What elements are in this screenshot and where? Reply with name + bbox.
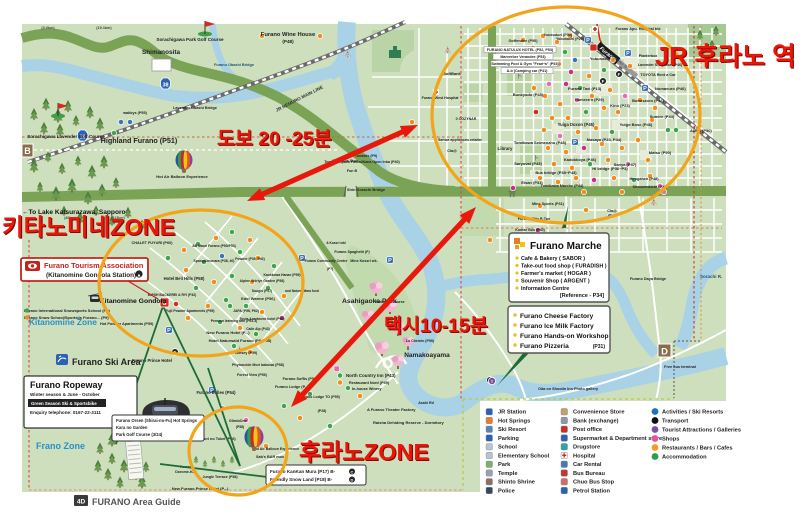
svg-text:CHALET FUYURI (P60): CHALET FUYURI (P60) <box>132 241 174 245</box>
svg-text:⛪: ⛪ <box>444 46 451 54</box>
svg-text:Activities / Ski Resorts: Activities / Ski Resorts <box>662 410 723 416</box>
svg-text:Kadokkoya (P46): Kadokkoya (P46) <box>564 157 597 162</box>
svg-text:Namera'n (P29): Namera'n (P29) <box>575 97 605 102</box>
svg-text:P: P <box>167 328 171 334</box>
svg-text:Goffendee (P50): Goffendee (P50) <box>508 39 538 43</box>
svg-text:Furano International Snowsport: Furano International Snowsports School (… <box>24 308 110 313</box>
svg-text:(P58): (P58) <box>236 425 244 429</box>
svg-text:Bunkyodo (P45): Bunkyodo (P45) <box>513 92 544 97</box>
svg-text:Tomikawa Marche (P44): Tomikawa Marche (P44) <box>541 184 585 188</box>
svg-text:JR 후라노 역: JR 후라노 역 <box>655 43 796 71</box>
svg-text:FURANO Area Guide: FURANO Area Guide <box>92 497 181 507</box>
svg-text:Lavender Obashi Bridge: Lavender Obashi Bridge <box>173 106 217 110</box>
svg-text:Furano Taxi (P13): Furano Taxi (P13) <box>568 86 602 91</box>
svg-text:F: F <box>602 79 605 84</box>
svg-text:Sorachigawa Park Golf Course: Sorachigawa Park Golf Course <box>156 37 224 42</box>
svg-text:Oita on Shootin Inn Photo gall: Oita on Shootin Inn Photo gallery <box>538 387 599 391</box>
svg-text:Petrol Station: Petrol Station <box>573 488 610 494</box>
svg-text:Bus bridge (P38~P43): Bus bridge (P38~P43) <box>535 170 577 175</box>
svg-text:Sab's BAR mos: Sab's BAR mos <box>256 455 284 459</box>
svg-text:Take-out food shop ( FURADISH: Take-out food shop ( FURADISH ) <box>521 264 607 270</box>
svg-text:Masaya (P23, P44): Masaya (P23, P44) <box>587 137 622 142</box>
svg-text:Calle Alp (P43): Calle Alp (P43) <box>246 327 270 331</box>
svg-text:Marverber Verandee (P53): Marverber Verandee (P53) <box>500 55 546 59</box>
svg-text:Phytoncide Mori bakuwa (P58): Phytoncide Mori bakuwa (P58) <box>232 363 285 367</box>
svg-text:Furano Cheese Factory: Furano Cheese Factory <box>520 313 594 320</box>
svg-text:택시10-15분: 택시10-15분 <box>384 315 488 337</box>
svg-text:Post office: Post office <box>573 427 602 433</box>
svg-text:Sorachigawa Lavender Golf Cour: Sorachigawa Lavender Golf Course <box>27 134 105 139</box>
svg-text:Restaurant Nord (P39): Restaurant Nord (P39) <box>349 381 390 385</box>
svg-text:Transport: Transport <box>662 419 688 425</box>
svg-text:Enquiry telephone: 0167-22-311: Enquiry telephone: 0167-22-3111 <box>30 410 101 415</box>
svg-text:Free bus terminal: Free bus terminal <box>664 365 696 369</box>
svg-text:New Furano Hotel (P...): New Furano Hotel (P...) <box>206 330 250 335</box>
svg-text:A-b (Camping car (P41): A-b (Camping car (P41) <box>507 69 549 73</box>
svg-text:GlimbOne: GlimbOne <box>229 419 247 423</box>
svg-text:Temple: Temple <box>498 471 518 477</box>
svg-text:Shin Sorachi Bridge: Shin Sorachi Bridge <box>347 187 386 192</box>
svg-text:Furano Ropeway: Furano Ropeway <box>30 380 103 390</box>
svg-text:Sorachi R.: Sorachi R. <box>700 274 722 279</box>
svg-text:Bank (exchange): Bank (exchange) <box>573 418 619 424</box>
svg-text:키타노미네ZONE: 키타노미네ZONE <box>2 214 175 240</box>
svg-text:(3.0km): (3.0km) <box>41 26 55 30</box>
svg-text:Furano West Hospital: Furano West Hospital <box>422 96 459 100</box>
svg-text:School: School <box>498 445 517 451</box>
svg-text:Sanya (P47): Sanya (P47) <box>614 162 637 167</box>
svg-text:⛩: ⛩ <box>508 190 516 198</box>
svg-text:Winter season & June - October: Winter season & June - October <box>30 392 100 397</box>
svg-text:후라노ZONE: 후라노ZONE <box>299 439 429 465</box>
svg-text:Parking: Parking <box>498 436 519 442</box>
svg-text:Sumire (P44): Sumire (P44) <box>650 114 675 119</box>
svg-text:Furano Pizzeria: Furano Pizzeria <box>520 343 569 350</box>
svg-text:Akiba (P50): Akiba (P50) <box>690 128 712 133</box>
svg-text:Cla@: Cla@ <box>607 209 617 213</box>
svg-text:Farmer's market ( HOGAR ): Farmer's market ( HOGAR ) <box>521 271 591 277</box>
svg-text:Hot Powder Apartments (P59): Hot Powder Apartments (P59) <box>100 322 154 326</box>
svg-text:Furano Marche: Furano Marche <box>530 241 602 252</box>
svg-text:D: D <box>661 347 668 358</box>
svg-text:Library: Library <box>498 146 513 151</box>
svg-text:Mine Kossri wk.: Mine Kossri wk. <box>350 259 377 263</box>
svg-text:Highland Furano (P51): Highland Furano (P51) <box>101 136 178 145</box>
svg-text:TOYOTA Rent a Car: TOYOTA Rent a Car <box>640 73 676 77</box>
svg-text:Furano Orsen (Shirai-no-Fu) Ho: Furano Orsen (Shirai-no-Fu) Hot Springs <box>116 418 198 423</box>
svg-text:wakkys (P55): wakkys (P55) <box>122 111 148 115</box>
svg-text:Furano Daya Bridge: Furano Daya Bridge <box>630 277 666 281</box>
svg-text:Fun B: Fun B <box>347 169 358 173</box>
svg-text:FURANO NATULUX HOTEL (P52, P53: FURANO NATULUX HOTEL (P52, P53) <box>487 48 554 52</box>
svg-text:(P28): (P28) <box>318 409 328 413</box>
svg-text:Cla@: Cla@ <box>447 149 457 153</box>
svg-text:Shops: Shops <box>662 437 679 443</box>
svg-text:Furano Tourism Association: Furano Tourism Association <box>44 261 144 270</box>
svg-text:Bus Bureau: Bus Bureau <box>573 471 605 477</box>
svg-text:Furano Lodge (P...): Furano Lodge (P...) <box>275 385 310 389</box>
svg-text:Furano Obashi Bridge: Furano Obashi Bridge <box>214 63 254 67</box>
svg-text:Shinto Shrine: Shinto Shrine <box>498 480 535 486</box>
svg-text:P: P <box>388 258 392 264</box>
svg-text:SoftBank: SoftBank <box>443 71 461 76</box>
svg-text:Namakoayama: Namakoayama <box>404 352 450 359</box>
svg-text:JR Station: JR Station <box>498 410 527 416</box>
svg-text:Green Season Ski & Sportsbike: Green Season Ski & Sportsbike <box>31 401 97 406</box>
svg-text:Hot Air Balloon Experience: Hot Air Balloon Experience <box>156 174 208 179</box>
svg-text:P: P <box>586 38 590 44</box>
svg-text:Furano Wine House: Furano Wine House <box>261 32 316 38</box>
svg-text:Tomikawa Seimenzho (P48): Tomikawa Seimenzho (P48) <box>514 140 567 145</box>
svg-text:Mine Sports (P31): Mine Sports (P31) <box>532 202 565 206</box>
svg-text:Information Centre: Information Centre <box>521 286 569 292</box>
svg-text:Spang&/monara (P38, 40): Spang&/monara (P38, 40) <box>194 259 235 263</box>
svg-text:P: P <box>643 86 647 92</box>
svg-text:Asahi Rd: Asahi Rd <box>418 401 434 405</box>
svg-text:In-house Winery: In-house Winery <box>352 387 382 391</box>
svg-text:▲: ▲ <box>137 272 142 278</box>
svg-text:Kino (P23): Kino (P23) <box>610 103 630 108</box>
svg-text:Supermarket & Department store: Supermarket & Department store <box>573 436 662 442</box>
svg-text:Hirogahen (P48): Hirogahen (P48) <box>629 177 659 181</box>
svg-text:P: P <box>300 256 304 262</box>
svg-text:Furano Ski Area: Furano Ski Area <box>72 357 142 367</box>
svg-text:Car Rental: Car Rental <box>573 462 602 468</box>
svg-text:P: P <box>573 140 577 146</box>
svg-text:0 COZYNAR: 0 COZYNAR <box>456 117 477 121</box>
svg-text:Cafe & Bakery ( SABOR ): Cafe & Bakery ( SABOR ) <box>521 256 585 262</box>
svg-text:(Kitanomine Gondola Station): (Kitanomine Gondola Station) <box>46 272 136 279</box>
svg-text:Tourist Attractions / Gallerie: Tourist Attractions / Galleries <box>662 428 741 434</box>
svg-text:Kaokkowa Hanae (P59): Kaokkowa Hanae (P59) <box>263 273 300 277</box>
svg-text:Accommodation: Accommodation <box>662 455 707 461</box>
svg-text:Friendly Snow Land (P18): Friendly Snow Land (P18) B- <box>270 477 333 482</box>
svg-text:Fujii Powder Apartments (P59): Fujii Powder Apartments (P59) <box>165 309 214 313</box>
svg-text:Furano Ice Milk Factory: Furano Ice Milk Factory <box>520 323 594 330</box>
svg-text:Furano Apu. Hospital bld: Furano Apu. Hospital bld <box>616 27 662 31</box>
svg-text:North Country Inn (P43): North Country Inn (P43) <box>346 373 396 378</box>
svg-text:La Chemin (P59): La Chemin (P59) <box>406 339 435 343</box>
svg-text:Elementary School: Elementary School <box>498 453 550 459</box>
svg-text:Park Golf Course (3/24): Park Golf Course (3/24) <box>116 432 163 437</box>
svg-text:Sanwa appliances retailer: Sanwa appliances retailer <box>438 138 483 142</box>
svg-text:Yobunashi: Yobunashi <box>590 56 610 61</box>
svg-text:Matsu (P50): Matsu (P50) <box>649 150 672 155</box>
svg-text:P: P <box>626 51 630 57</box>
svg-text:Park: Park <box>498 462 511 468</box>
svg-text:도보 20 -25분: 도보 20 -25분 <box>217 128 332 150</box>
svg-text:38: 38 <box>162 83 168 89</box>
svg-text:Saryoval (P43): Saryoval (P43) <box>514 161 542 166</box>
svg-text:Sougis (P57): Sougis (P57) <box>252 289 273 293</box>
svg-text:Swimming Pool & Gym "Feari*a": Swimming Pool & Gym "Feari*a" (P53) <box>491 62 559 66</box>
svg-text:Kitanomine Zone: Kitanomine Zone <box>29 317 97 327</box>
svg-text:Convenience Store: Convenience Store <box>573 410 625 416</box>
svg-text:Police: Police <box>498 488 515 494</box>
svg-text:Kitanomine Gondola: Kitanomine Gondola <box>100 298 167 305</box>
svg-text:Pension learning arm (P61.3): Pension learning arm (P61.3) <box>211 319 258 323</box>
svg-text:(19.1km): (19.1km) <box>96 26 112 30</box>
svg-text:Hospital: Hospital <box>573 453 596 459</box>
svg-text:(P?): (P?) <box>327 267 333 271</box>
svg-text:4D: 4D <box>77 499 86 506</box>
svg-text:Kara no Garden: Kara no Garden <box>116 425 148 430</box>
svg-text:JAPA (P58, P62): JAPA (P58, P62) <box>233 309 259 313</box>
svg-text:Hotel Bell Hills (P58): Hotel Bell Hills (P58) <box>164 276 205 281</box>
svg-text:C: C <box>351 470 354 475</box>
svg-text:M.PSH BACKEREI & RYI (P32): M.PSH BACKEREI & RYI (P32) <box>148 293 196 297</box>
svg-text:AB Mauri Furano (P50/P53): AB Mauri Furano (P50/P53) <box>192 244 236 248</box>
svg-text:Yuiga Doxon (P45): Yuiga Doxon (P45) <box>558 122 595 127</box>
svg-text:卜: 卜 <box>516 73 522 80</box>
svg-text:Yulgo Bosc (P46): Yulgo Bosc (P46) <box>620 122 653 127</box>
svg-text:& Kossri wkt: & Kossri wkt <box>326 241 346 245</box>
svg-text:Towards (P9): Towards (P9) <box>355 154 378 158</box>
svg-text:Raisha Dehiding Reserve - Dorm: Raisha Dehiding Reserve - Dormitory <box>373 420 444 425</box>
svg-text:Forest View (P56): Forest View (P56) <box>237 373 268 377</box>
svg-text:Jungle Terrace (P58): Jungle Terrace (P58) <box>202 475 238 479</box>
svg-text:Shimanosita: Shimanosita <box>142 49 180 56</box>
svg-text:Frano Zone: Frano Zone <box>36 441 85 451</box>
svg-text:Drugstore: Drugstore <box>573 445 600 451</box>
svg-text:D: D <box>351 478 354 483</box>
svg-text:Nomaeuro (P46): Nomaeuro (P46) <box>655 86 686 91</box>
svg-text:(P31): (P31) <box>593 344 606 350</box>
svg-text:⛪: ⛪ <box>344 50 351 58</box>
svg-text:Ski Resort: Ski Resort <box>498 427 526 433</box>
svg-text:Powder (P39, P40): Powder (P39, P40) <box>235 257 264 261</box>
svg-text:Yobunashi (P20): Yobunashi (P20) <box>556 37 585 41</box>
svg-text:B: B <box>24 146 31 156</box>
svg-text:A Furano Theater Factory: A Furano Theater Factory <box>367 407 416 412</box>
svg-text:Komae Bus (P40): Komae Bus (P40) <box>515 228 545 232</box>
svg-text:Bonuszoro (P46): Bonuszoro (P46) <box>632 98 664 103</box>
svg-text:(P48): (P48) <box>282 39 294 44</box>
svg-text:Hot Springs: Hot Springs <box>498 418 530 424</box>
svg-text:Edel Warme (P56): Edel Warme (P56) <box>241 296 275 301</box>
svg-text:Alpine Shirlye Garden (P58): Alpine Shirlye Garden (P58) <box>240 279 285 283</box>
svg-text:Hot Air Balloon Experience: Hot Air Balloon Experience <box>253 447 299 451</box>
svg-text:Chuo Bus Stop: Chuo Bus Stop <box>573 480 615 486</box>
svg-text:Souvenir Shop ( ARGENT ): Souvenir Shop ( ARGENT ) <box>521 279 590 285</box>
svg-text:Furano Spaghetti (P): Furano Spaghetti (P) <box>334 250 370 254</box>
svg-text:[Reference - P34]: [Reference - P34] <box>560 293 604 299</box>
svg-text:Restaurants / Bars / Cafes: Restaurants / Bars / Cafes <box>662 446 733 452</box>
svg-text:Furano Hands-on Workshop: Furano Hands-on Workshop <box>520 333 609 340</box>
svg-text:F: F <box>618 72 621 77</box>
svg-text:Furano Community Centre: Furano Community Centre <box>305 259 348 263</box>
svg-text:New Furano Prince Hotel (P...): New Furano Prince Hotel (P...) <box>172 486 229 491</box>
